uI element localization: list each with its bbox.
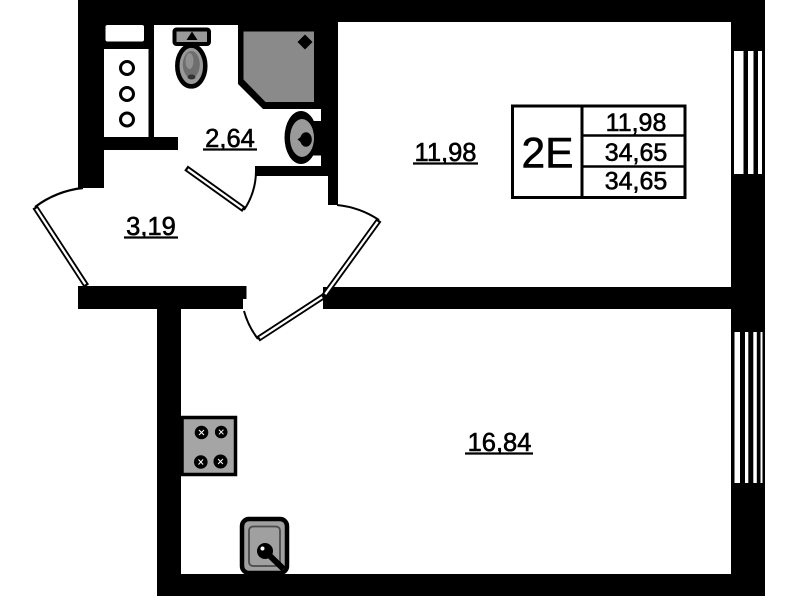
svg-text:34,65: 34,65	[605, 168, 668, 196]
svg-text:2Е: 2Е	[522, 131, 574, 178]
svg-text:11,98: 11,98	[606, 109, 667, 137]
svg-text:34,65: 34,65	[605, 139, 668, 167]
